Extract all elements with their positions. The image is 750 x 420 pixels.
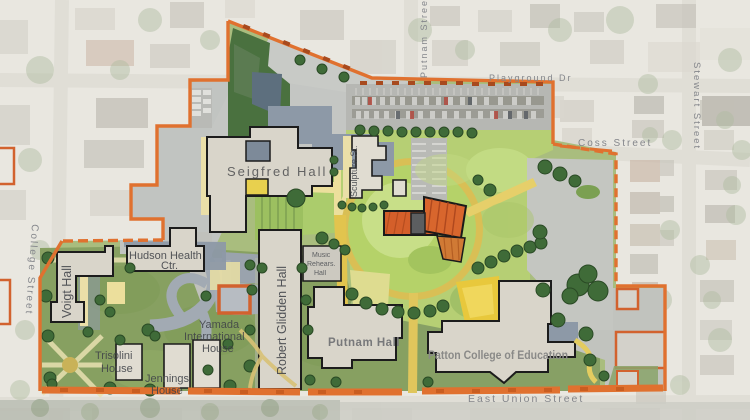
svg-text:Robert Glidden Hall: Robert Glidden Hall: [275, 266, 289, 375]
svg-text:Hall: Hall: [314, 270, 327, 277]
svg-text:Coss Street: Coss Street: [578, 138, 652, 149]
svg-text:Ctr.: Ctr.: [161, 260, 178, 272]
svg-text:Playground Dr: Playground Dr: [489, 73, 573, 83]
svg-text:House: House: [101, 363, 133, 375]
svg-text:Rehears.: Rehears.: [307, 261, 335, 268]
svg-text:Putnam Street: Putnam Street: [419, 0, 429, 78]
svg-text:Patton College of Education: Patton College of Education: [428, 350, 568, 362]
svg-text:Yamada: Yamada: [199, 319, 240, 331]
svg-text:House: House: [151, 385, 183, 397]
svg-text:East Union Street: East Union Street: [468, 393, 584, 405]
svg-text:Sculpture St.: Sculpture St.: [349, 145, 359, 197]
svg-text:Jennings: Jennings: [145, 373, 190, 385]
svg-text:Seigfred Hall: Seigfred Hall: [227, 164, 327, 179]
svg-text:Putnam Hall: Putnam Hall: [328, 337, 400, 349]
svg-text:Trisolini: Trisolini: [95, 350, 133, 362]
svg-text:House: House: [202, 343, 234, 355]
svg-text:Stewart Street: Stewart Street: [691, 62, 702, 150]
svg-text:International: International: [184, 331, 245, 343]
svg-text:Music: Music: [312, 252, 331, 259]
svg-text:Voigt Hall: Voigt Hall: [60, 265, 74, 318]
